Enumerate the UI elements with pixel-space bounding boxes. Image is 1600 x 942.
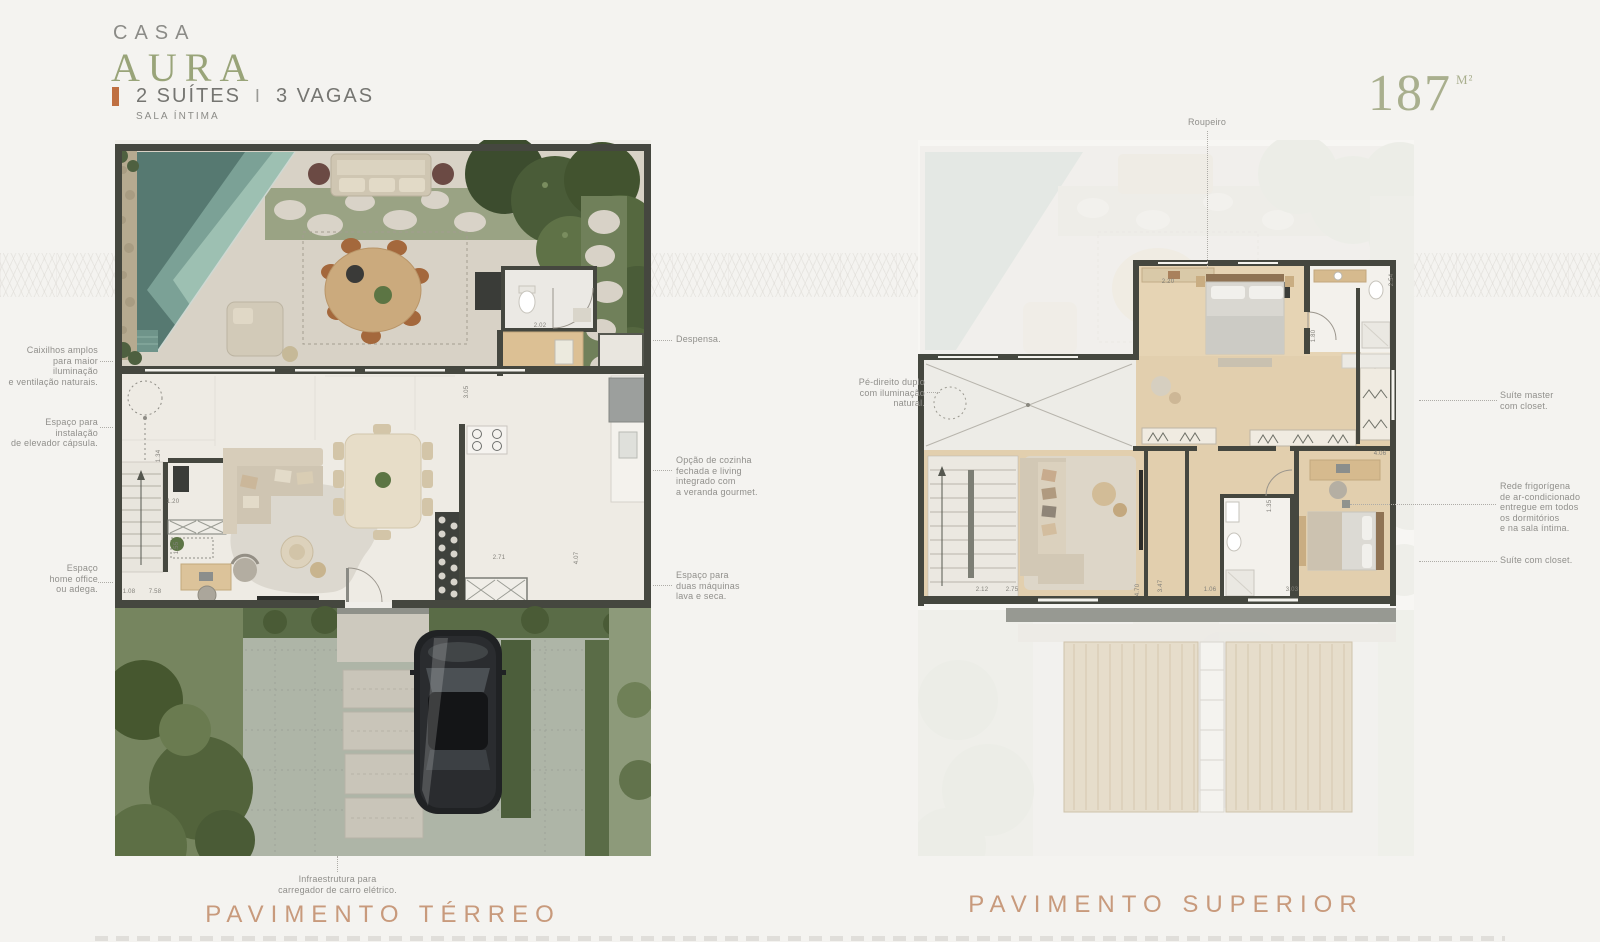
pantry-closet — [599, 334, 643, 370]
dimension-label: 3.03 — [1286, 587, 1298, 593]
dimension-label: 2.12 — [976, 587, 988, 593]
annotation-pe-direito: Pé-direito duplo com iluminação natural. — [830, 377, 925, 409]
planter-icon — [308, 163, 330, 185]
annotation-carregador: Infraestrutura para carregador de carro … — [250, 874, 425, 895]
annotation-despensa: Despensa. — [676, 334, 766, 345]
dimension-label: 3.47 — [1158, 580, 1164, 592]
hedge-strip — [585, 640, 609, 856]
upper-stairs — [928, 456, 1018, 598]
master-bathroom — [1308, 266, 1392, 352]
wine-rack — [435, 512, 461, 602]
leader-line — [1207, 131, 1208, 268]
pouf — [1092, 482, 1116, 506]
leader-line — [100, 427, 113, 428]
area-label: 187M² — [1368, 64, 1508, 123]
upper-floor-plan: 2.202.541.804.062.122.754.703.471.063.03… — [918, 140, 1414, 856]
area-unit: M² — [1456, 72, 1473, 87]
spec-suites: 2 SUÍTES — [136, 85, 241, 108]
ground-floor-plan: 2.023.052.714.071.341.201.551.087.58 — [115, 140, 651, 856]
dimension-label: 1.20 — [167, 499, 179, 505]
leader-line — [653, 470, 672, 471]
spec-sala-intima: SALA ÍNTIMA — [136, 111, 220, 122]
dimension-label: 2.71 — [493, 555, 505, 561]
caption-pavimento-superior: PAVIMENTO SUPERIOR — [918, 891, 1414, 919]
dimension-label: 1.55 — [174, 542, 180, 554]
spec-divider: I — [241, 86, 276, 107]
brand-casa-label: CASA — [113, 22, 195, 45]
leader-line — [337, 856, 338, 872]
floorplan-page: { "header": { "brand_top": "CASA", "bran… — [0, 0, 1600, 942]
hedge-strip — [501, 640, 531, 818]
stairs — [119, 462, 168, 572]
dimension-label: 1.34 — [156, 450, 162, 462]
desk-chair — [1329, 481, 1347, 499]
leader-line — [1419, 561, 1497, 562]
spec-vagas: 3 VAGAS — [276, 85, 374, 108]
pouf — [1113, 503, 1127, 517]
hall-counter — [1342, 354, 1394, 368]
leader-line — [1350, 504, 1496, 505]
dimension-label: 2.20 — [1162, 279, 1174, 285]
annotation-cozinha: Opção de cozinha fechada e living integr… — [676, 455, 771, 497]
brand-aura-title: AURA — [111, 44, 256, 91]
leader-line — [98, 582, 113, 583]
ac-point — [1342, 500, 1350, 508]
dimension-label: 1.08 — [123, 589, 135, 595]
dimension-label: 1.80 — [1311, 330, 1317, 342]
caption-pavimento-terreo: PAVIMENTO TÉRREO — [115, 901, 651, 929]
leader-line — [100, 361, 113, 362]
dimension-label: 7.58 — [149, 589, 161, 595]
spec-row: 2 SUÍTES I 3 VAGAS — [112, 85, 374, 108]
sala-tv-panel — [1139, 470, 1143, 550]
annotation-suite-master: Suíte master com closet. — [1500, 390, 1595, 411]
leader-line — [1419, 400, 1497, 401]
suite-bed — [1298, 512, 1384, 570]
side-stool — [310, 562, 326, 578]
stepping-stones — [343, 670, 423, 838]
roof-pergola — [1006, 608, 1396, 812]
car — [410, 630, 506, 814]
dimension-label: 2.02 — [534, 323, 546, 329]
lavabo-bathroom — [503, 268, 595, 330]
ground-floor-plan-graphic — [115, 140, 651, 856]
annotation-suite-closet: Suíte com closet. — [1500, 555, 1598, 566]
cropped-disclaimer-row — [95, 936, 1505, 941]
leader-line — [653, 340, 672, 341]
pantry-cabinet — [475, 272, 501, 310]
driveway-area — [115, 606, 651, 856]
annotation-elevador: Espaço para instalação de elevador cápsu… — [6, 417, 98, 449]
dimension-label: 4.06 — [1374, 451, 1386, 457]
annotation-caixilhos: Caixilhos amplos para maior iluminação e… — [6, 345, 98, 387]
tv-console — [257, 596, 319, 600]
area-value: 187 — [1368, 65, 1452, 122]
annotation-rede-frigorigena: Rede frigorígena de ar-condicionado entr… — [1500, 481, 1598, 534]
dimension-label: 2.54 — [1389, 274, 1395, 286]
double-height-void — [922, 360, 1136, 450]
second-suite — [1298, 460, 1384, 570]
leader-line — [927, 392, 940, 393]
dimension-label: 4.07 — [574, 552, 580, 564]
master-bed — [1206, 274, 1284, 354]
dimension-label: 2.75 — [1006, 587, 1018, 593]
bed-bench — [1218, 358, 1272, 367]
dimension-label: 1.06 — [1204, 587, 1216, 593]
planter-icon — [432, 163, 454, 185]
right-garden — [609, 608, 651, 856]
accent-bar-icon — [112, 87, 119, 106]
annotation-roupeiro: Roupeiro — [1167, 117, 1247, 128]
dimension-label: 4.70 — [1135, 584, 1141, 596]
laundry-closet — [465, 578, 527, 602]
annotation-home-office: Espaço home office ou adega. — [6, 563, 98, 595]
annotation-lava-seca: Espaço para duas máquinas lava e seca. — [676, 570, 766, 602]
dining-table-set — [333, 424, 433, 540]
dimension-label: 3.05 — [464, 386, 470, 398]
dimension-label: 1.35 — [1267, 500, 1273, 512]
leader-line — [653, 585, 672, 586]
upper-floor-plan-graphic — [918, 140, 1414, 856]
